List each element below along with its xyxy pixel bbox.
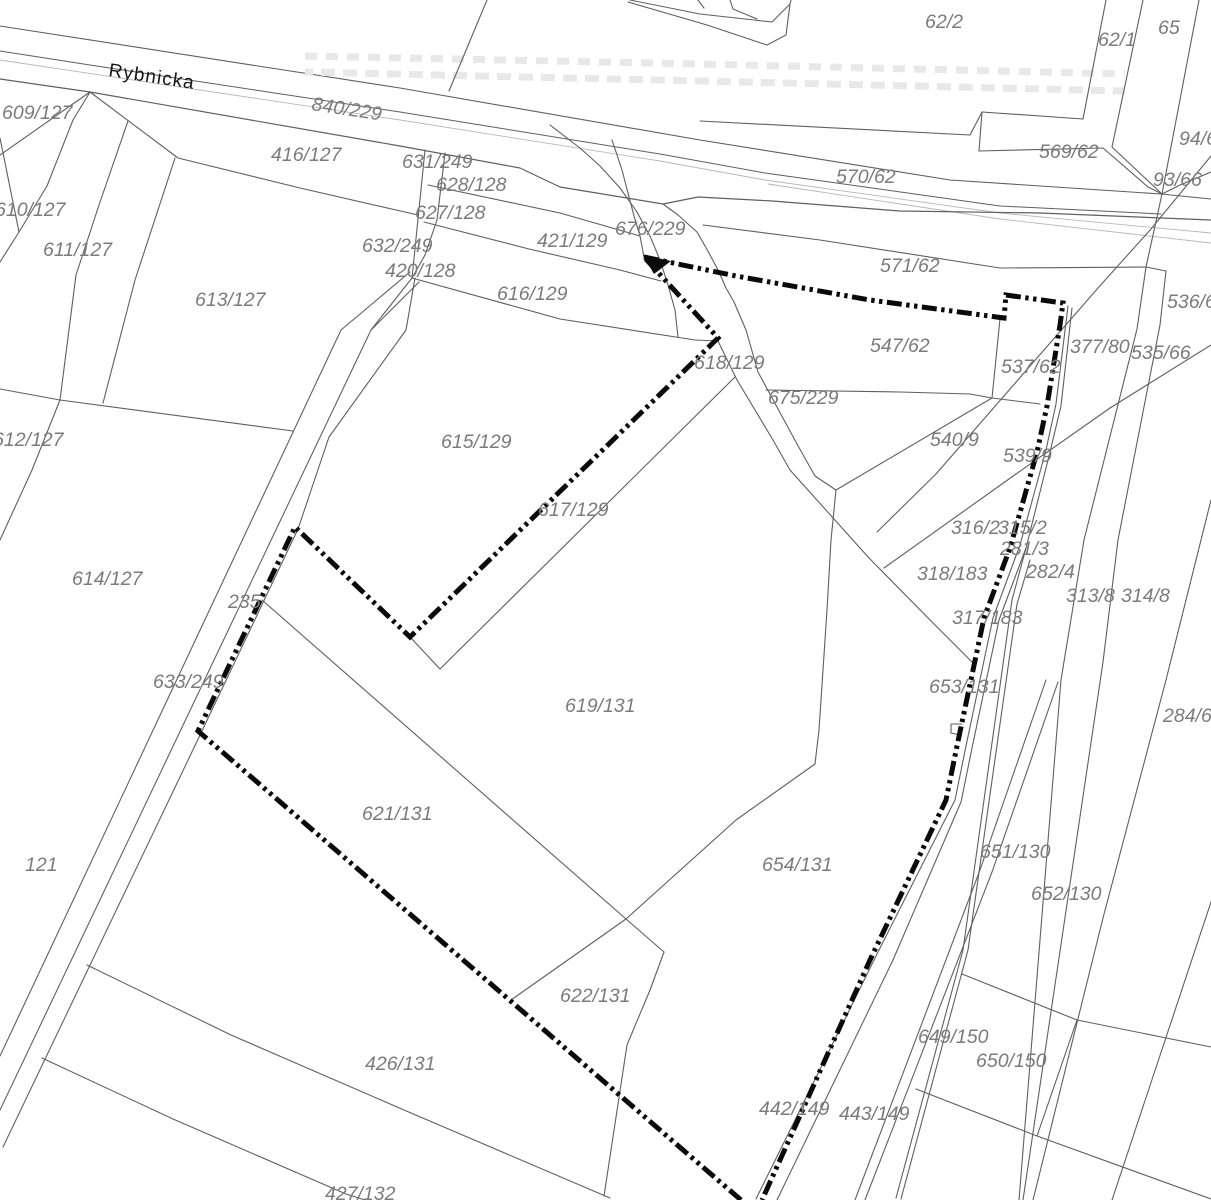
svg-text:420/128: 420/128 bbox=[385, 260, 456, 282]
svg-text:539/9: 539/9 bbox=[1003, 445, 1052, 467]
svg-text:652/130: 652/130 bbox=[1031, 883, 1102, 905]
svg-text:536/66: 536/66 bbox=[1167, 291, 1211, 313]
svg-text:570/62: 570/62 bbox=[836, 166, 896, 188]
svg-text:615/129: 615/129 bbox=[441, 431, 512, 453]
svg-text:315/2: 315/2 bbox=[998, 517, 1047, 539]
svg-text:650/150: 650/150 bbox=[976, 1050, 1047, 1072]
svg-text:612/127: 612/127 bbox=[0, 429, 65, 451]
svg-text:235: 235 bbox=[227, 591, 261, 613]
svg-text:62/1: 62/1 bbox=[1098, 29, 1136, 51]
svg-text:609/127: 609/127 bbox=[2, 102, 74, 124]
svg-text:443/149: 443/149 bbox=[839, 1103, 910, 1125]
svg-text:65: 65 bbox=[1158, 17, 1180, 39]
svg-text:569/62: 569/62 bbox=[1039, 141, 1099, 163]
svg-text:611/127: 611/127 bbox=[43, 239, 113, 261]
svg-text:632/249: 632/249 bbox=[362, 235, 433, 257]
svg-text:62/2: 62/2 bbox=[925, 11, 963, 33]
svg-text:314/8: 314/8 bbox=[1121, 585, 1170, 607]
svg-text:421/129: 421/129 bbox=[537, 230, 608, 252]
svg-text:610/127: 610/127 bbox=[0, 199, 67, 221]
svg-text:537/62: 537/62 bbox=[1001, 356, 1061, 378]
svg-text:318/183: 318/183 bbox=[917, 563, 988, 585]
svg-text:617/129: 617/129 bbox=[538, 499, 609, 521]
svg-text:631/249: 631/249 bbox=[402, 151, 473, 173]
svg-text:651/130: 651/130 bbox=[980, 841, 1051, 863]
svg-text:654/131: 654/131 bbox=[762, 854, 833, 876]
svg-text:316/2: 316/2 bbox=[951, 517, 1000, 539]
svg-text:676/229: 676/229 bbox=[615, 218, 686, 240]
svg-text:282/4: 282/4 bbox=[1025, 561, 1075, 583]
svg-text:628/128: 628/128 bbox=[436, 174, 507, 196]
svg-text:614/127: 614/127 bbox=[72, 568, 144, 590]
svg-text:627/128: 627/128 bbox=[415, 202, 486, 224]
svg-text:317/183: 317/183 bbox=[952, 607, 1023, 629]
svg-text:618/129: 618/129 bbox=[694, 352, 765, 374]
svg-text:571/62: 571/62 bbox=[880, 255, 940, 277]
svg-text:94/66: 94/66 bbox=[1179, 128, 1211, 150]
svg-text:284/6: 284/6 bbox=[1162, 705, 1211, 727]
svg-text:633/249: 633/249 bbox=[153, 671, 224, 693]
svg-text:121: 121 bbox=[25, 854, 58, 876]
svg-text:621/131: 621/131 bbox=[362, 803, 433, 825]
svg-text:649/150: 649/150 bbox=[918, 1026, 989, 1048]
svg-text:540/9: 540/9 bbox=[930, 429, 979, 451]
svg-text:653/131: 653/131 bbox=[929, 676, 1000, 698]
svg-text:377/80: 377/80 bbox=[1070, 336, 1130, 358]
svg-text:547/62: 547/62 bbox=[870, 335, 930, 357]
svg-text:613/127: 613/127 bbox=[195, 289, 267, 311]
svg-text:426/131: 426/131 bbox=[365, 1053, 436, 1075]
svg-text:535/66: 535/66 bbox=[1131, 342, 1191, 364]
svg-text:313/8: 313/8 bbox=[1066, 585, 1115, 607]
svg-text:416/127: 416/127 bbox=[271, 144, 343, 166]
svg-text:616/129: 616/129 bbox=[497, 283, 568, 305]
svg-text:675/229: 675/229 bbox=[768, 387, 839, 409]
svg-text:622/131: 622/131 bbox=[560, 985, 631, 1007]
svg-text:281/3: 281/3 bbox=[999, 538, 1049, 560]
svg-text:442/149: 442/149 bbox=[759, 1098, 830, 1120]
svg-text:619/131: 619/131 bbox=[565, 695, 636, 717]
svg-text:427/132: 427/132 bbox=[325, 1183, 396, 1200]
svg-text:93/66: 93/66 bbox=[1153, 169, 1202, 191]
